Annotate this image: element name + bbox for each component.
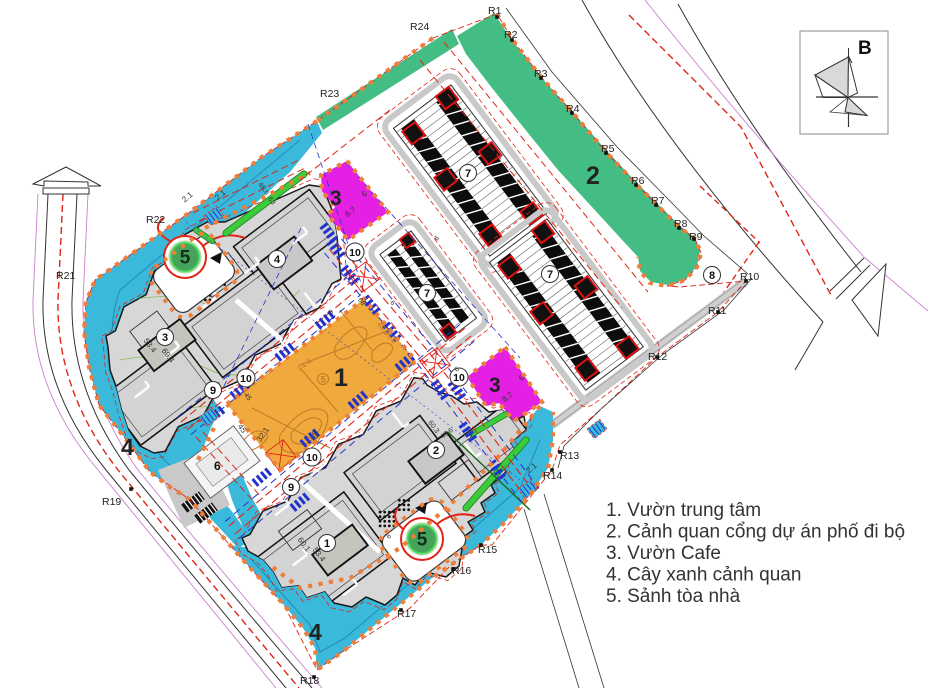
svg-text:R9: R9: [689, 231, 703, 243]
svg-text:6: 6: [214, 459, 221, 473]
svg-text:7: 7: [424, 288, 430, 300]
svg-text:9: 9: [210, 385, 216, 397]
svg-text:B: B: [858, 38, 872, 59]
svg-text:2. Cảnh quan cổng dự án phố đi: 2. Cảnh quan cổng dự án phố đi bộ: [606, 522, 905, 543]
svg-text:4: 4: [274, 254, 281, 266]
svg-text:1. Vườn trung tâm: 1. Vườn trung tâm: [606, 500, 761, 521]
svg-text:1: 1: [334, 364, 348, 392]
svg-text:2: 2: [433, 445, 439, 457]
svg-text:R18: R18: [300, 675, 319, 687]
svg-text:R24: R24: [410, 21, 429, 33]
svg-text:10: 10: [453, 372, 465, 384]
svg-text:1: 1: [324, 538, 330, 550]
svg-text:R13: R13: [560, 450, 579, 462]
svg-text:3: 3: [162, 332, 168, 344]
svg-text:5: 5: [320, 375, 325, 385]
svg-text:4. Cây xanh cảnh quan: 4. Cây xanh cảnh quan: [606, 565, 801, 586]
svg-text:R1: R1: [488, 5, 502, 17]
svg-text:10: 10: [349, 247, 361, 259]
svg-text:R10: R10: [740, 271, 759, 283]
svg-text:3: 3: [489, 374, 501, 397]
svg-text:3: 3: [330, 187, 342, 210]
svg-text:9: 9: [288, 482, 294, 494]
svg-text:R22: R22: [146, 214, 165, 226]
svg-text:10: 10: [240, 373, 252, 385]
svg-text:R19: R19: [102, 496, 121, 508]
svg-text:5: 5: [417, 530, 428, 551]
svg-text:10: 10: [306, 452, 318, 464]
svg-text:5: 5: [180, 248, 191, 269]
svg-text:4: 4: [121, 434, 134, 460]
svg-text:5. Sảnh tòa nhà: 5. Sảnh tòa nhà: [606, 586, 741, 607]
svg-text:7: 7: [465, 168, 471, 180]
svg-text:R23: R23: [320, 88, 339, 100]
svg-text:8: 8: [709, 270, 715, 282]
svg-text:4: 4: [309, 619, 322, 645]
svg-text:R21: R21: [56, 270, 75, 282]
svg-text:R16: R16: [452, 565, 471, 577]
svg-text:7: 7: [547, 269, 553, 281]
svg-text:2: 2: [586, 162, 600, 190]
svg-text:3. Vườn Cafe: 3. Vườn Cafe: [606, 543, 721, 564]
